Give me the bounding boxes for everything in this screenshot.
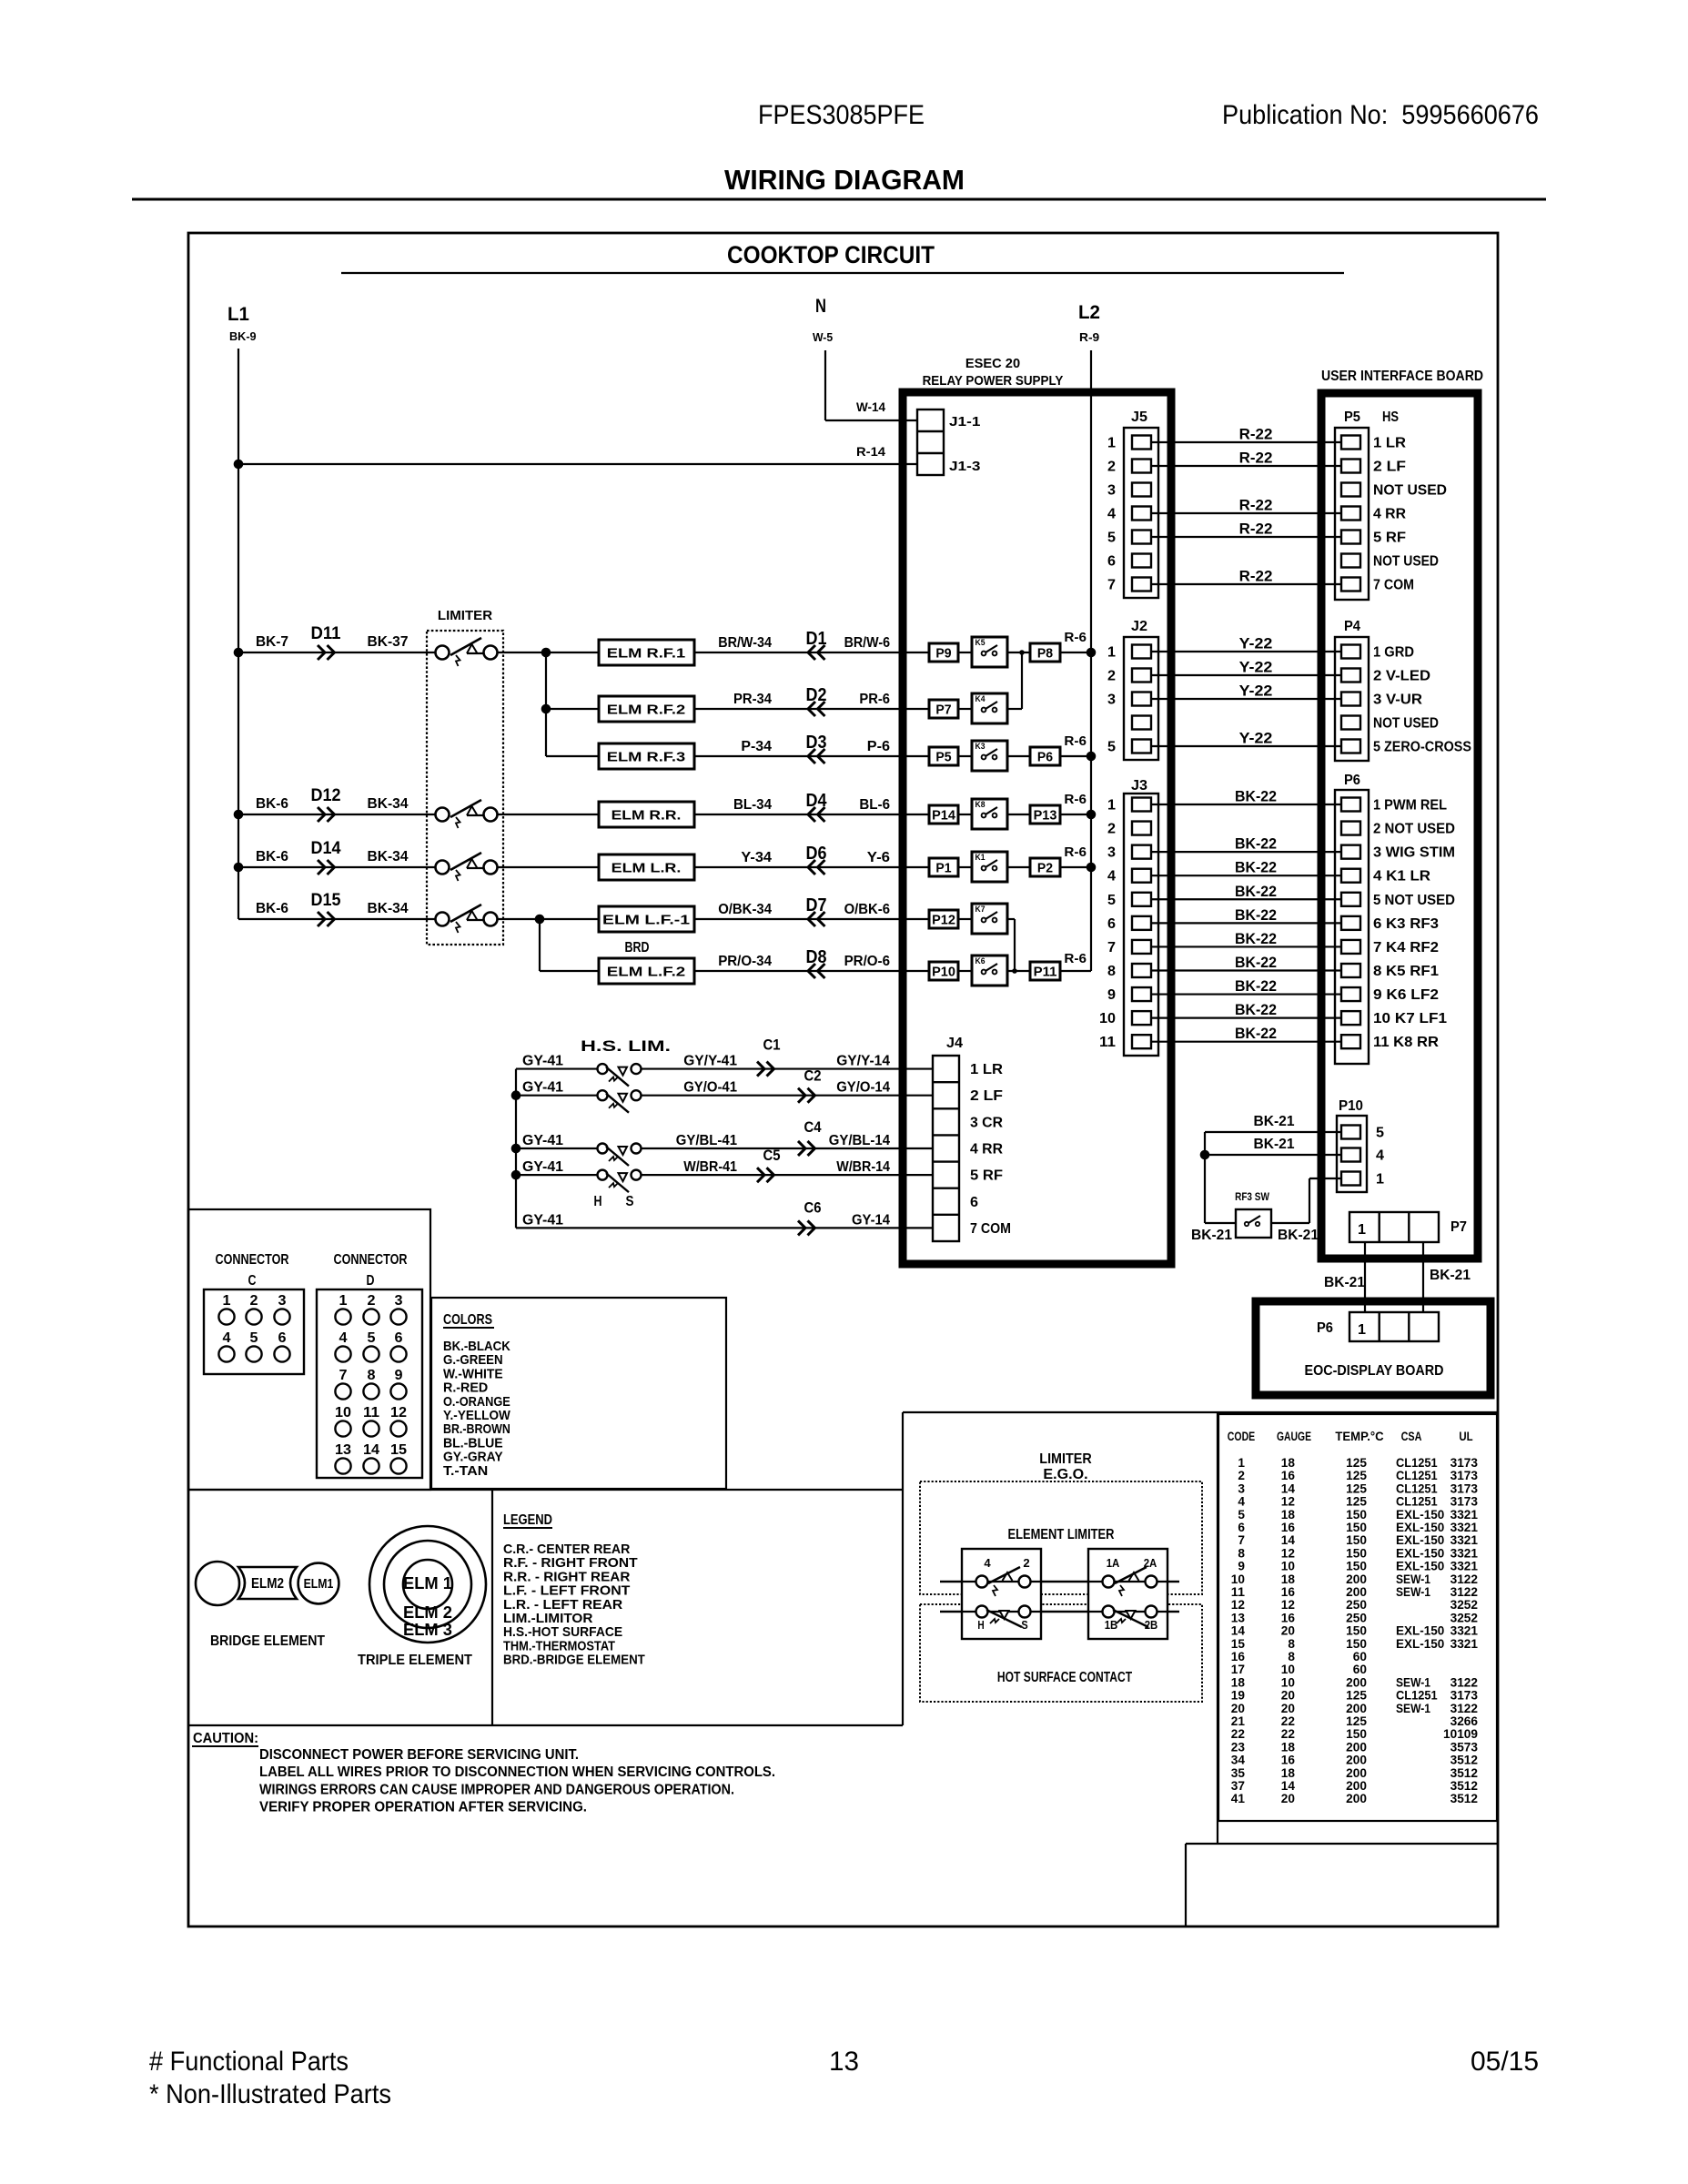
svg-text:C: C [248, 1273, 257, 1289]
svg-text:14: 14 [1231, 1624, 1246, 1638]
svg-text:1: 1 [1107, 436, 1116, 451]
svg-text:* Non-Illustrated Parts: * Non-Illustrated Parts [149, 2079, 391, 2109]
svg-text:CONNECTOR: CONNECTOR [334, 1252, 408, 1268]
svg-text:8 K5 RF1: 8 K5 RF1 [1373, 964, 1439, 979]
svg-text:Y-22: Y-22 [1239, 682, 1273, 700]
svg-text:3321: 3321 [1450, 1508, 1479, 1522]
svg-text:C5: C5 [763, 1147, 781, 1164]
svg-text:12: 12 [1281, 1546, 1295, 1560]
svg-text:9: 9 [1107, 987, 1116, 1003]
svg-text:2: 2 [368, 1293, 376, 1309]
svg-text:EXL-150: EXL-150 [1396, 1521, 1444, 1534]
svg-text:1: 1 [1358, 1222, 1366, 1238]
svg-text:BK-34: BK-34 [368, 796, 409, 812]
svg-text:10: 10 [1281, 1560, 1295, 1573]
svg-text:BK-21: BK-21 [1254, 1114, 1295, 1129]
svg-text:ELM 3: ELM 3 [403, 1621, 452, 1639]
svg-text:P10: P10 [932, 965, 955, 980]
svg-text:C2: C2 [804, 1067, 822, 1085]
svg-text:2 NOT USED: 2 NOT USED [1373, 822, 1455, 837]
svg-text:D7: D7 [806, 895, 827, 915]
svg-text:150: 150 [1346, 1546, 1367, 1560]
svg-text:1: 1 [1238, 1456, 1245, 1470]
svg-text:PR/O-6: PR/O-6 [844, 954, 890, 969]
svg-text:ELM1: ELM1 [304, 1576, 334, 1592]
svg-text:20: 20 [1281, 1702, 1295, 1715]
svg-text:16: 16 [1281, 1585, 1296, 1599]
svg-text:GY/BL-14: GY/BL-14 [829, 1133, 890, 1148]
svg-text:J4: J4 [946, 1036, 963, 1051]
svg-text:4: 4 [223, 1330, 231, 1346]
svg-text:R-22: R-22 [1239, 521, 1273, 538]
svg-text:5: 5 [1107, 740, 1116, 755]
svg-text:LABEL ALL WIRES PRIOR TO DISCO: LABEL ALL WIRES PRIOR TO DISCONNECTION W… [259, 1764, 775, 1780]
svg-text:10: 10 [1281, 1675, 1295, 1689]
svg-text:125: 125 [1346, 1456, 1367, 1470]
svg-text:D: D [367, 1273, 375, 1289]
svg-text:3 WIG STIM: 3 WIG STIM [1373, 845, 1455, 861]
svg-text:3512: 3512 [1450, 1754, 1478, 1767]
svg-text:2B: 2B [1145, 1618, 1158, 1632]
svg-text:P7: P7 [935, 703, 951, 718]
svg-text:41: 41 [1231, 1792, 1246, 1805]
svg-text:6: 6 [1107, 916, 1116, 932]
svg-text:VERIFY PROPER OPERATION AFTER: VERIFY PROPER OPERATION AFTER SERVICING. [259, 1800, 587, 1815]
svg-text:BK-37: BK-37 [368, 634, 409, 650]
svg-text:BL-34: BL-34 [733, 797, 772, 813]
svg-text:BR/W-6: BR/W-6 [844, 635, 890, 651]
svg-text:CL1251: CL1251 [1396, 1469, 1438, 1482]
svg-text:D14: D14 [311, 839, 341, 858]
svg-text:PR-6: PR-6 [859, 692, 890, 707]
svg-text:7: 7 [1238, 1533, 1245, 1547]
svg-text:BRIDGE ELEMENT: BRIDGE ELEMENT [210, 1633, 325, 1649]
svg-text:17: 17 [1231, 1663, 1245, 1676]
svg-text:15: 15 [1231, 1637, 1246, 1651]
svg-text:R-6: R-6 [1064, 793, 1087, 807]
svg-text:10: 10 [1099, 1011, 1116, 1026]
svg-text:20: 20 [1281, 1689, 1295, 1703]
svg-text:NOT USED: NOT USED [1373, 554, 1439, 570]
svg-text:P6: P6 [1317, 1320, 1333, 1336]
svg-text:ELM2: ELM2 [251, 1576, 284, 1592]
svg-text:14: 14 [1281, 1533, 1296, 1547]
svg-text:200: 200 [1346, 1572, 1367, 1586]
svg-text:2 LF: 2 LF [970, 1088, 1003, 1104]
svg-text:DISCONNECT POWER BEFORE SERVIC: DISCONNECT POWER BEFORE SERVICING UNIT. [259, 1747, 579, 1763]
svg-text:23: 23 [1231, 1740, 1246, 1754]
svg-text:18: 18 [1281, 1572, 1296, 1586]
svg-text:K3: K3 [975, 742, 986, 751]
svg-text:1 LR: 1 LR [1373, 436, 1406, 451]
svg-text:3321: 3321 [1450, 1624, 1479, 1638]
svg-text:5 RF: 5 RF [1373, 531, 1406, 546]
svg-text:7: 7 [1107, 578, 1116, 593]
svg-text:Y-34: Y-34 [741, 850, 772, 865]
svg-text:Y-6: Y-6 [867, 850, 890, 865]
svg-text:SEW-1: SEW-1 [1396, 1572, 1430, 1586]
svg-text:D1: D1 [806, 629, 827, 649]
svg-text:200: 200 [1346, 1702, 1367, 1715]
svg-text:3: 3 [1107, 845, 1116, 861]
svg-text:R-22: R-22 [1239, 497, 1273, 514]
svg-text:13: 13 [829, 2047, 859, 2077]
svg-text:4: 4 [1238, 1495, 1245, 1509]
svg-text:2: 2 [1107, 460, 1116, 475]
svg-text:P9: P9 [935, 646, 951, 662]
svg-text:3: 3 [1107, 483, 1116, 499]
svg-text:20: 20 [1281, 1792, 1295, 1805]
svg-text:3512: 3512 [1450, 1766, 1478, 1780]
svg-text:ELM R.R.: ELM R.R. [612, 808, 682, 824]
svg-text:H: H [594, 1194, 602, 1209]
svg-text:BK-22: BK-22 [1235, 788, 1277, 805]
svg-text:3512: 3512 [1450, 1779, 1478, 1793]
svg-text:7: 7 [1107, 940, 1116, 955]
svg-text:3321: 3321 [1450, 1546, 1479, 1560]
svg-text:9 K6 LF2: 9 K6 LF2 [1373, 987, 1439, 1003]
svg-text:RF3 SW: RF3 SW [1235, 1190, 1269, 1203]
svg-text:11: 11 [1231, 1585, 1246, 1599]
svg-text:18: 18 [1231, 1675, 1246, 1689]
svg-text:3321: 3321 [1450, 1521, 1479, 1534]
svg-text:37: 37 [1231, 1779, 1245, 1793]
svg-text:8: 8 [1238, 1546, 1245, 1560]
svg-text:BRD.-BRIDGE ELEMENT: BRD.-BRIDGE ELEMENT [503, 1653, 645, 1668]
svg-text:BK-34: BK-34 [368, 849, 409, 864]
svg-text:2A: 2A [1144, 1556, 1157, 1570]
svg-text:P4: P4 [1344, 619, 1360, 634]
svg-text:4: 4 [339, 1330, 348, 1346]
svg-text:2 LF: 2 LF [1373, 460, 1406, 475]
svg-text:P11: P11 [1034, 965, 1057, 980]
svg-text:5: 5 [368, 1330, 376, 1346]
svg-text:PR-34: PR-34 [733, 692, 772, 707]
svg-text:6: 6 [278, 1330, 287, 1346]
svg-text:TEMP.°C: TEMP.°C [1335, 1430, 1383, 1443]
svg-text:W-5: W-5 [813, 330, 833, 344]
svg-text:R-22: R-22 [1239, 426, 1273, 443]
svg-text:BK-9: BK-9 [229, 329, 257, 343]
svg-text:7 COM: 7 COM [1373, 578, 1414, 593]
svg-text:4: 4 [984, 1556, 991, 1570]
svg-text:C4: C4 [804, 1118, 822, 1136]
svg-text:3122: 3122 [1450, 1585, 1478, 1599]
svg-text:Publication No: 5995660676: Publication No: 5995660676 [1222, 100, 1539, 130]
svg-text:SEW-1: SEW-1 [1396, 1585, 1430, 1599]
svg-text:BK-22: BK-22 [1235, 930, 1277, 947]
svg-text:13: 13 [335, 1442, 351, 1458]
svg-text:GY-41: GY-41 [522, 1080, 563, 1096]
svg-text:EXL-150: EXL-150 [1396, 1560, 1444, 1573]
svg-text:8: 8 [1288, 1637, 1295, 1651]
svg-text:1 LR: 1 LR [970, 1062, 1003, 1077]
svg-text:1: 1 [1376, 1172, 1384, 1188]
svg-text:O/BK-6: O/BK-6 [844, 902, 890, 917]
svg-text:GY-41: GY-41 [522, 1133, 563, 1148]
svg-text:BK-21: BK-21 [1278, 1228, 1319, 1243]
svg-text:GY/BL-41: GY/BL-41 [676, 1133, 737, 1148]
svg-text:60: 60 [1353, 1663, 1367, 1676]
svg-text:K5: K5 [975, 638, 986, 647]
svg-text:5 ZERO-CROSS: 5 ZERO-CROSS [1373, 740, 1471, 755]
svg-text:200: 200 [1346, 1754, 1367, 1767]
svg-text:125: 125 [1346, 1481, 1367, 1495]
svg-text:16: 16 [1281, 1469, 1296, 1482]
svg-text:R-6: R-6 [1064, 631, 1087, 645]
svg-text:60: 60 [1353, 1650, 1367, 1663]
svg-text:150: 150 [1346, 1637, 1367, 1651]
svg-text:14: 14 [1281, 1481, 1296, 1495]
svg-text:125: 125 [1346, 1714, 1367, 1728]
svg-text:L2: L2 [1078, 302, 1100, 323]
svg-text:R-22: R-22 [1239, 568, 1273, 585]
svg-text:K4: K4 [975, 694, 986, 703]
svg-text:150: 150 [1346, 1521, 1367, 1534]
svg-text:CONNECTOR: CONNECTOR [216, 1252, 289, 1268]
svg-text:T.-TAN: T.-TAN [443, 1463, 488, 1479]
svg-text:8: 8 [368, 1368, 376, 1383]
svg-text:J1-3: J1-3 [949, 459, 980, 474]
svg-text:EXL-150: EXL-150 [1396, 1546, 1444, 1560]
svg-text:10109: 10109 [1443, 1727, 1478, 1741]
svg-text:2 V-LED: 2 V-LED [1373, 669, 1430, 684]
svg-text:P-6: P-6 [867, 739, 890, 754]
svg-text:L1: L1 [227, 304, 249, 325]
svg-text:22: 22 [1281, 1714, 1295, 1728]
svg-text:12: 12 [1281, 1598, 1295, 1612]
svg-text:R-9: R-9 [1079, 330, 1099, 344]
svg-text:250: 250 [1346, 1598, 1367, 1612]
svg-text:3: 3 [278, 1293, 287, 1309]
svg-text:3173: 3173 [1450, 1689, 1479, 1703]
svg-text:BK-22: BK-22 [1235, 1001, 1277, 1018]
svg-text:BK-21: BK-21 [1191, 1228, 1232, 1243]
svg-text:S: S [626, 1194, 634, 1209]
svg-text:3173: 3173 [1450, 1456, 1479, 1470]
svg-text:5 RF: 5 RF [970, 1168, 1003, 1184]
svg-text:CL1251: CL1251 [1396, 1495, 1438, 1509]
svg-text:ELM L.F.-1: ELM L.F.-1 [602, 913, 690, 928]
svg-text:BK-22: BK-22 [1235, 859, 1277, 876]
svg-text:1: 1 [339, 1293, 348, 1309]
svg-text:150: 150 [1346, 1533, 1367, 1547]
svg-text:N: N [815, 296, 826, 317]
svg-text:H: H [977, 1618, 984, 1632]
svg-text:16: 16 [1281, 1611, 1296, 1624]
svg-text:250: 250 [1346, 1611, 1367, 1624]
svg-text:8: 8 [1107, 964, 1116, 979]
svg-text:2: 2 [1107, 669, 1116, 684]
svg-text:D3: D3 [806, 733, 827, 753]
svg-text:200: 200 [1346, 1779, 1367, 1793]
svg-text:3573: 3573 [1450, 1740, 1479, 1754]
svg-text:3122: 3122 [1450, 1572, 1478, 1586]
svg-text:P8: P8 [1037, 646, 1053, 662]
svg-text:14: 14 [363, 1442, 379, 1458]
svg-text:6: 6 [970, 1195, 978, 1210]
svg-text:5: 5 [250, 1330, 258, 1346]
svg-text:CL1251: CL1251 [1396, 1481, 1438, 1495]
svg-text:PR/O-34: PR/O-34 [718, 954, 772, 969]
svg-text:3: 3 [1107, 693, 1116, 708]
svg-text:W/BR-14: W/BR-14 [836, 1159, 890, 1175]
svg-text:TRIPLE ELEMENT: TRIPLE ELEMENT [358, 1653, 472, 1668]
svg-text:3 CR: 3 CR [970, 1115, 1003, 1130]
svg-text:3: 3 [1238, 1481, 1245, 1495]
svg-text:BK-22: BK-22 [1235, 954, 1277, 971]
svg-text:RELAY POWER SUPPLY: RELAY POWER SUPPLY [923, 373, 1064, 389]
svg-text:1: 1 [1107, 645, 1116, 661]
svg-text:3321: 3321 [1450, 1637, 1479, 1651]
svg-text:ELM L.F.2: ELM L.F.2 [607, 965, 685, 980]
svg-text:3252: 3252 [1450, 1598, 1478, 1612]
svg-text:21: 21 [1231, 1714, 1246, 1728]
svg-text:6: 6 [1107, 554, 1116, 570]
svg-text:D4: D4 [806, 791, 828, 811]
svg-text:150: 150 [1346, 1624, 1367, 1638]
svg-text:13: 13 [1231, 1611, 1246, 1624]
svg-text:COOKTOP CIRCUIT: COOKTOP CIRCUIT [727, 241, 935, 268]
svg-text:BR/W-34: BR/W-34 [718, 635, 772, 651]
svg-text:3122: 3122 [1450, 1702, 1478, 1715]
svg-text:16: 16 [1281, 1521, 1296, 1534]
svg-text:CODE: CODE [1228, 1430, 1255, 1443]
svg-text:3122: 3122 [1450, 1675, 1478, 1689]
svg-text:J2: J2 [1131, 619, 1147, 634]
svg-text:BL-6: BL-6 [859, 797, 890, 813]
svg-text:125: 125 [1346, 1469, 1367, 1482]
svg-text:BK-7: BK-7 [256, 634, 288, 650]
svg-text:14: 14 [1281, 1779, 1296, 1793]
svg-text:18: 18 [1281, 1508, 1296, 1522]
svg-text:NOT USED: NOT USED [1373, 483, 1447, 499]
svg-text:BK-6: BK-6 [256, 849, 288, 864]
svg-text:P13: P13 [1034, 808, 1057, 824]
svg-text:8: 8 [1288, 1650, 1295, 1663]
svg-text:R-22: R-22 [1239, 450, 1273, 467]
svg-text:34: 34 [1231, 1754, 1246, 1767]
svg-text:WIRINGS ERRORS CAN CAUSE IMPRO: WIRINGS ERRORS CAN CAUSE IMPROPER AND DA… [259, 1782, 734, 1797]
svg-text:6: 6 [395, 1330, 403, 1346]
svg-text:12: 12 [1281, 1495, 1295, 1509]
svg-text:3321: 3321 [1450, 1560, 1479, 1573]
svg-text:C1: C1 [763, 1036, 781, 1054]
svg-text:200: 200 [1346, 1675, 1367, 1689]
svg-text:BK-22: BK-22 [1235, 883, 1277, 900]
svg-text:P-34: P-34 [741, 739, 772, 754]
svg-text:D2: D2 [806, 685, 827, 705]
svg-text:5: 5 [1107, 531, 1116, 546]
svg-text:E.G.O.: E.G.O. [1043, 1467, 1087, 1482]
svg-text:3252: 3252 [1450, 1611, 1478, 1624]
svg-text:20: 20 [1231, 1702, 1245, 1715]
svg-text:COLORS: COLORS [443, 1312, 492, 1328]
svg-text:P1: P1 [935, 861, 951, 876]
svg-text:P2: P2 [1037, 861, 1053, 876]
svg-text:18: 18 [1281, 1456, 1296, 1470]
svg-text:P6: P6 [1344, 773, 1360, 788]
svg-text:ELM 2: ELM 2 [403, 1603, 452, 1622]
svg-text:19: 19 [1231, 1689, 1245, 1703]
svg-text:CAUTION:: CAUTION: [193, 1731, 258, 1746]
svg-text:150: 150 [1346, 1508, 1367, 1522]
svg-text:D12: D12 [311, 786, 341, 805]
svg-text:D6: D6 [806, 844, 827, 864]
svg-text:GY/O-41: GY/O-41 [683, 1080, 737, 1096]
svg-text:5: 5 [1376, 1126, 1384, 1141]
svg-text:BK-22: BK-22 [1235, 977, 1277, 995]
svg-text:22: 22 [1231, 1727, 1245, 1741]
svg-text:BK-22: BK-22 [1235, 835, 1277, 853]
svg-text:3512: 3512 [1450, 1792, 1478, 1805]
svg-text:3: 3 [395, 1293, 403, 1309]
svg-text:2: 2 [1238, 1469, 1245, 1482]
svg-text:EXL-150: EXL-150 [1396, 1624, 1444, 1638]
svg-text:3173: 3173 [1450, 1469, 1479, 1482]
svg-text:S: S [1021, 1618, 1028, 1632]
svg-text:6 K3 RF3: 6 K3 RF3 [1373, 916, 1439, 932]
svg-text:125: 125 [1346, 1495, 1367, 1509]
svg-text:C6: C6 [804, 1198, 822, 1216]
svg-text:W-14: W-14 [856, 399, 885, 414]
svg-text:D8: D8 [806, 947, 827, 967]
svg-text:3 V-UR: 3 V-UR [1373, 693, 1422, 708]
svg-text:P10: P10 [1339, 1098, 1363, 1114]
svg-text:6: 6 [1238, 1521, 1245, 1534]
svg-text:EOC-DISPLAY BOARD: EOC-DISPLAY BOARD [1305, 1363, 1444, 1379]
svg-text:P12: P12 [932, 913, 955, 928]
svg-text:EXL-150: EXL-150 [1396, 1637, 1444, 1651]
svg-text:16: 16 [1281, 1754, 1296, 1767]
svg-text:# Functional Parts: # Functional Parts [149, 2047, 349, 2077]
svg-text:LIMITER: LIMITER [438, 608, 492, 623]
svg-text:4 RR: 4 RR [1373, 507, 1406, 522]
svg-text:Y-22: Y-22 [1239, 659, 1273, 676]
svg-text:LEGEND: LEGEND [503, 1512, 552, 1528]
svg-text:K7: K7 [975, 905, 986, 914]
svg-text:J5: J5 [1131, 409, 1147, 425]
svg-text:1: 1 [223, 1293, 231, 1309]
svg-text:GY/Y-41: GY/Y-41 [683, 1054, 737, 1069]
svg-text:GY-14: GY-14 [852, 1212, 890, 1228]
svg-text:ELM 1: ELM 1 [403, 1574, 452, 1592]
svg-text:4 K1 LR: 4 K1 LR [1373, 869, 1430, 885]
svg-text:Y-22: Y-22 [1239, 730, 1273, 747]
svg-text:10: 10 [1231, 1572, 1245, 1586]
svg-text:CL1251: CL1251 [1396, 1689, 1438, 1703]
svg-text:HOT SURFACE CONTACT: HOT SURFACE CONTACT [997, 1670, 1132, 1685]
svg-text:200: 200 [1346, 1792, 1367, 1805]
svg-text:ESEC 20: ESEC 20 [965, 356, 1020, 371]
svg-text:BK-6: BK-6 [256, 796, 288, 812]
svg-text:7 COM: 7 COM [970, 1221, 1011, 1237]
svg-text:K8: K8 [975, 800, 986, 809]
svg-text:J1-1: J1-1 [949, 414, 980, 430]
svg-text:05/15: 05/15 [1471, 2047, 1539, 2077]
svg-text:H.S. LIM.: H.S. LIM. [581, 1037, 671, 1055]
svg-text:CSA: CSA [1401, 1430, 1422, 1443]
svg-text:35: 35 [1231, 1766, 1246, 1780]
svg-text:BK-22: BK-22 [1235, 906, 1277, 924]
svg-text:P14: P14 [932, 808, 955, 824]
svg-text:HS: HS [1382, 409, 1399, 425]
svg-text:O/BK-34: O/BK-34 [718, 902, 772, 917]
svg-text:9: 9 [395, 1368, 403, 1383]
svg-text:4: 4 [1107, 869, 1116, 885]
svg-text:9: 9 [1238, 1560, 1245, 1573]
svg-text:1B: 1B [1105, 1618, 1118, 1632]
